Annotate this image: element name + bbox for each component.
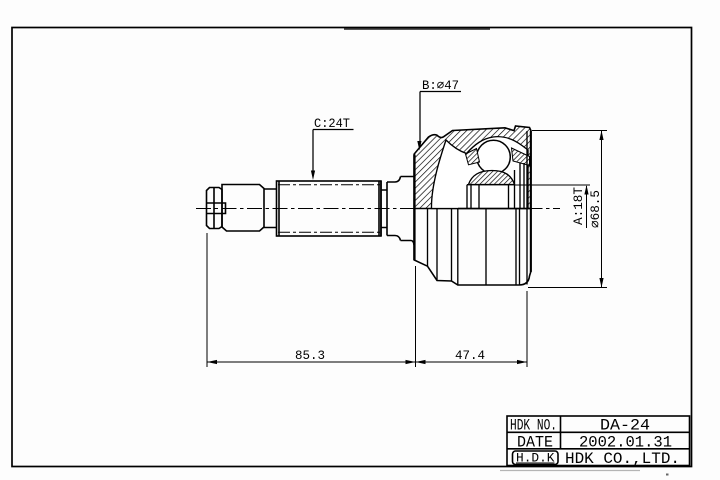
svg-text:A:18T: A:18T xyxy=(572,187,586,225)
svg-text:47.4: 47.4 xyxy=(455,348,485,363)
svg-text:85.3: 85.3 xyxy=(295,348,325,363)
svg-text:HDK NO.: HDK NO. xyxy=(510,417,557,435)
svg-text:2002.01.31: 2002.01.31 xyxy=(579,434,672,452)
svg-text:⌀68.5: ⌀68.5 xyxy=(589,190,603,228)
svg-text:DA-24: DA-24 xyxy=(600,417,650,435)
svg-text:HDK CO.,LTD.: HDK CO.,LTD. xyxy=(565,450,680,468)
svg-text:DATE: DATE xyxy=(517,434,553,452)
